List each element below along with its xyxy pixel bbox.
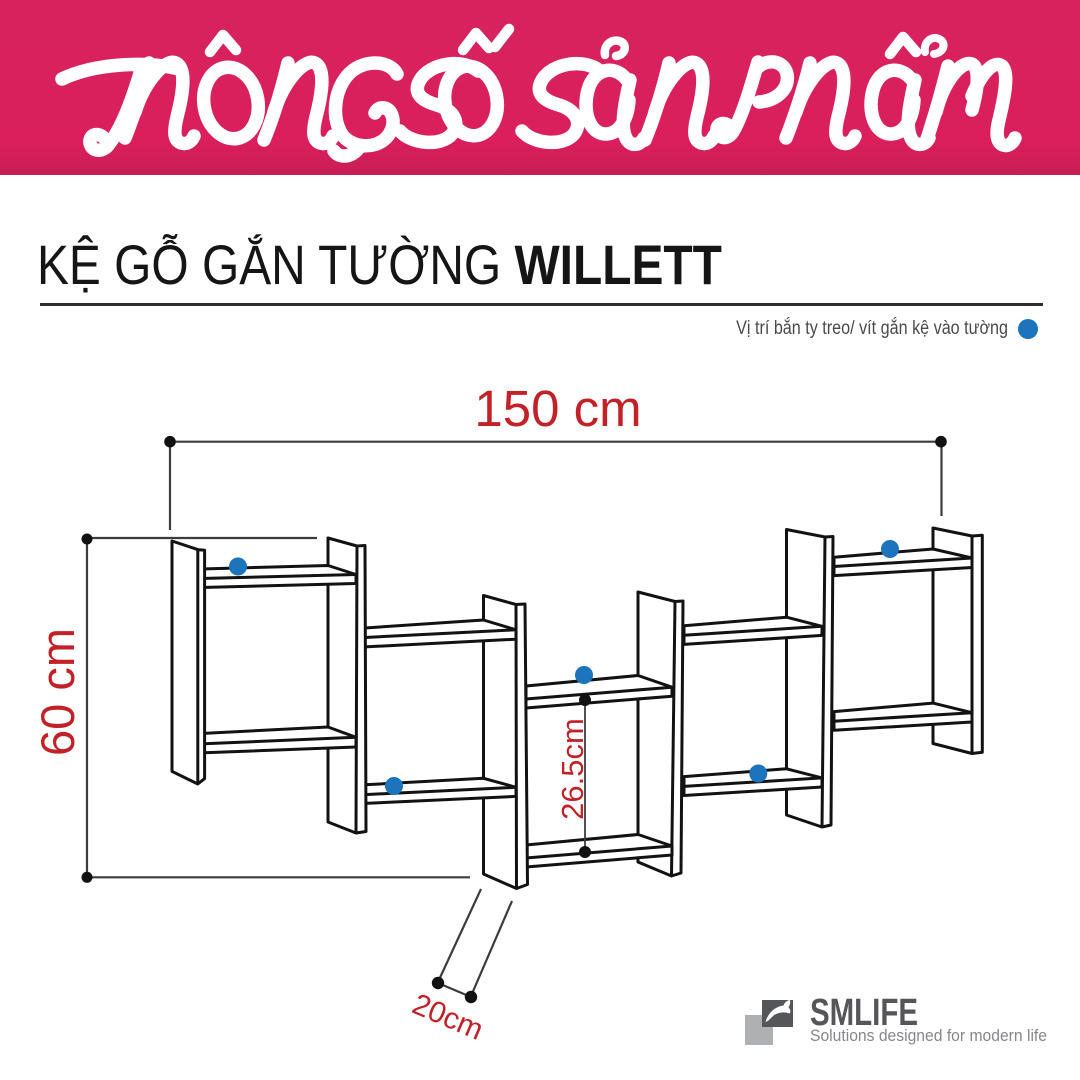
svg-text:60 cm: 60 cm [31,628,84,756]
svg-text:150 cm: 150 cm [474,380,641,437]
svg-text:Solutions designed for modern: Solutions designed for modern life [810,1027,1047,1045]
svg-text:26.5cm: 26.5cm [555,718,590,820]
